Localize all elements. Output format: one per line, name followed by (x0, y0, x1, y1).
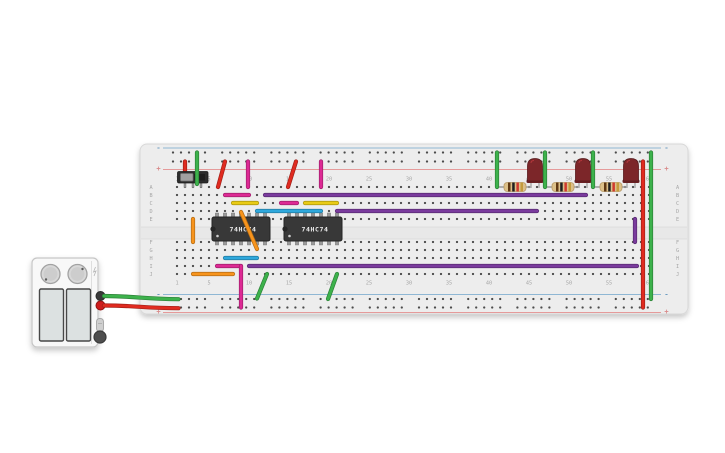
rail-hole[interactable] (335, 306, 337, 308)
breadboard-hole[interactable] (368, 186, 370, 188)
breadboard-hole[interactable] (376, 241, 378, 243)
rail-hole[interactable] (442, 298, 444, 300)
breadboard-hole[interactable] (576, 218, 578, 220)
breadboard-hole[interactable] (192, 210, 194, 212)
breadboard-hole[interactable] (448, 186, 450, 188)
breadboard-hole[interactable] (552, 210, 554, 212)
power-button[interactable] (94, 331, 106, 343)
breadboard-hole[interactable] (400, 186, 402, 188)
breadboard-hole[interactable] (192, 194, 194, 196)
rail-hole[interactable] (286, 298, 288, 300)
breadboard-hole[interactable] (280, 186, 282, 188)
breadboard-hole[interactable] (616, 194, 618, 196)
breadboard-hole[interactable] (272, 257, 274, 259)
breadboard-hole[interactable] (592, 202, 594, 204)
breadboard-hole[interactable] (192, 249, 194, 251)
rail-hole[interactable] (426, 160, 428, 162)
breadboard-hole[interactable] (496, 218, 498, 220)
rail-hole[interactable] (597, 151, 599, 153)
breadboard-hole[interactable] (328, 257, 330, 259)
breadboard-hole[interactable] (616, 273, 618, 275)
breadboard-hole[interactable] (568, 202, 570, 204)
breadboard-hole[interactable] (408, 273, 410, 275)
breadboard-hole[interactable] (624, 218, 626, 220)
breadboard-hole[interactable] (624, 194, 626, 196)
breadboard-hole[interactable] (560, 202, 562, 204)
breadboard-hole[interactable] (504, 241, 506, 243)
rail-hole[interactable] (516, 298, 518, 300)
rail-hole[interactable] (221, 306, 223, 308)
breadboard-hole[interactable] (352, 218, 354, 220)
rail-hole[interactable] (245, 151, 247, 153)
rail-hole[interactable] (499, 160, 501, 162)
breadboard-hole[interactable] (360, 241, 362, 243)
circuit-canvas[interactable]: --++--++11551010151520202525303035354040… (0, 0, 725, 453)
rail-hole[interactable] (647, 151, 649, 153)
breadboard-hole[interactable] (568, 257, 570, 259)
breadboard-hole[interactable] (376, 257, 378, 259)
breadboard-hole[interactable] (576, 241, 578, 243)
breadboard-hole[interactable] (536, 186, 538, 188)
rail-hole[interactable] (475, 160, 477, 162)
breadboard-hole[interactable] (520, 241, 522, 243)
rail-hole[interactable] (589, 298, 591, 300)
breadboard-hole[interactable] (368, 249, 370, 251)
rail-hole[interactable] (524, 306, 526, 308)
breadboard-hole[interactable] (464, 273, 466, 275)
rail-hole[interactable] (639, 160, 641, 162)
rail-hole[interactable] (442, 306, 444, 308)
power-supply[interactable] (32, 258, 106, 347)
breadboard-hole[interactable] (456, 202, 458, 204)
rail-hole[interactable] (450, 160, 452, 162)
rail-hole[interactable] (418, 298, 420, 300)
breadboard-hole[interactable] (200, 257, 202, 259)
rail-hole[interactable] (491, 160, 493, 162)
breadboard-hole[interactable] (608, 241, 610, 243)
breadboard-hole[interactable] (440, 249, 442, 251)
rail-hole[interactable] (377, 151, 379, 153)
breadboard-hole[interactable] (592, 241, 594, 243)
breadboard-hole[interactable] (200, 218, 202, 220)
breadboard-hole[interactable] (328, 186, 330, 188)
breadboard-hole[interactable] (416, 202, 418, 204)
breadboard-hole[interactable] (528, 241, 530, 243)
breadboard-hole[interactable] (584, 186, 586, 188)
breadboard-hole[interactable] (472, 186, 474, 188)
rail-hole[interactable] (319, 306, 321, 308)
rail-hole[interactable] (237, 151, 239, 153)
breadboard-hole[interactable] (272, 249, 274, 251)
rail-hole[interactable] (434, 298, 436, 300)
breadboard-hole[interactable] (280, 257, 282, 259)
breadboard-hole[interactable] (456, 249, 458, 251)
breadboard-hole[interactable] (184, 273, 186, 275)
breadboard-hole[interactable] (272, 202, 274, 204)
breadboard-hole[interactable] (480, 186, 482, 188)
breadboard-hole[interactable] (528, 257, 530, 259)
rail-hole[interactable] (253, 306, 255, 308)
breadboard-hole[interactable] (416, 257, 418, 259)
rail-hole[interactable] (270, 151, 272, 153)
breadboard-hole[interactable] (176, 202, 178, 204)
rail-hole[interactable] (327, 306, 329, 308)
rail-hole[interactable] (639, 151, 641, 153)
breadboard-hole[interactable] (576, 202, 578, 204)
breadboard-hole[interactable] (504, 273, 506, 275)
rail-hole[interactable] (351, 160, 353, 162)
breadboard-hole[interactable] (512, 218, 514, 220)
breadboard-hole[interactable] (240, 249, 242, 251)
breadboard-hole[interactable] (488, 186, 490, 188)
rail-hole[interactable] (319, 298, 321, 300)
rail-hole[interactable] (196, 298, 198, 300)
breadboard-hole[interactable] (632, 273, 634, 275)
breadboard-hole[interactable] (488, 218, 490, 220)
rail-hole[interactable] (286, 306, 288, 308)
breadboard-hole[interactable] (584, 273, 586, 275)
rail-hole[interactable] (369, 306, 371, 308)
rail-hole[interactable] (475, 298, 477, 300)
breadboard-hole[interactable] (416, 218, 418, 220)
breadboard-hole[interactable] (232, 186, 234, 188)
breadboard-hole[interactable] (424, 218, 426, 220)
breadboard-hole[interactable] (232, 210, 234, 212)
rail-hole[interactable] (351, 298, 353, 300)
breadboard-hole[interactable] (312, 257, 314, 259)
breadboard-hole[interactable] (520, 257, 522, 259)
breadboard-hole[interactable] (312, 249, 314, 251)
breadboard-hole[interactable] (512, 241, 514, 243)
rail-hole[interactable] (188, 306, 190, 308)
breadboard-hole[interactable] (488, 202, 490, 204)
breadboard-hole[interactable] (432, 202, 434, 204)
breadboard-hole[interactable] (296, 249, 298, 251)
breadboard-hole[interactable] (464, 249, 466, 251)
breadboard-hole[interactable] (416, 186, 418, 188)
breadboard-hole[interactable] (384, 249, 386, 251)
breadboard-hole[interactable] (592, 273, 594, 275)
breadboard-hole[interactable] (464, 241, 466, 243)
breadboard-hole[interactable] (464, 218, 466, 220)
breadboard-hole[interactable] (600, 202, 602, 204)
rail-hole[interactable] (623, 306, 625, 308)
breadboard-hole[interactable] (376, 218, 378, 220)
breadboard-hole[interactable] (624, 202, 626, 204)
rail-hole[interactable] (385, 306, 387, 308)
breadboard-hole[interactable] (176, 265, 178, 267)
rail-hole[interactable] (434, 306, 436, 308)
breadboard-hole[interactable] (464, 257, 466, 259)
breadboard-hole[interactable] (576, 249, 578, 251)
rail-hole[interactable] (467, 160, 469, 162)
breadboard-hole[interactable] (392, 186, 394, 188)
breadboard-hole[interactable] (264, 186, 266, 188)
breadboard-hole[interactable] (440, 186, 442, 188)
rail-hole[interactable] (245, 306, 247, 308)
breadboard-hole[interactable] (216, 249, 218, 251)
breadboard-hole[interactable] (200, 194, 202, 196)
breadboard-hole[interactable] (592, 194, 594, 196)
breadboard-hole[interactable] (344, 241, 346, 243)
rail-hole[interactable] (532, 298, 534, 300)
rail-hole[interactable] (581, 298, 583, 300)
rail-hole[interactable] (369, 160, 371, 162)
rail-hole[interactable] (335, 298, 337, 300)
breadboard-hole[interactable] (288, 249, 290, 251)
rail-hole[interactable] (442, 151, 444, 153)
breadboard-hole[interactable] (272, 186, 274, 188)
rail-hole[interactable] (253, 151, 255, 153)
breadboard-hole[interactable] (480, 257, 482, 259)
breadboard-hole[interactable] (600, 249, 602, 251)
rail-hole[interactable] (450, 151, 452, 153)
breadboard-hole[interactable] (592, 218, 594, 220)
breadboard-hole[interactable] (176, 273, 178, 275)
breadboard-hole[interactable] (192, 202, 194, 204)
breadboard-hole[interactable] (552, 241, 554, 243)
breadboard-hole[interactable] (344, 257, 346, 259)
rail-hole[interactable] (286, 160, 288, 162)
breadboard-hole[interactable] (352, 273, 354, 275)
rail-hole[interactable] (647, 306, 649, 308)
rail-hole[interactable] (491, 151, 493, 153)
breadboard-hole[interactable] (504, 218, 506, 220)
breadboard-hole[interactable] (632, 202, 634, 204)
breadboard-hole[interactable] (568, 249, 570, 251)
breadboard-hole[interactable] (392, 257, 394, 259)
rail-hole[interactable] (229, 298, 231, 300)
breadboard-hole[interactable] (176, 257, 178, 259)
breadboard-hole[interactable] (520, 273, 522, 275)
rail-hole[interactable] (499, 151, 501, 153)
rail-hole[interactable] (573, 160, 575, 162)
rail-hole[interactable] (426, 298, 428, 300)
breadboard-hole[interactable] (528, 273, 530, 275)
breadboard-hole[interactable] (176, 249, 178, 251)
breadboard-hole[interactable] (224, 249, 226, 251)
breadboard-hole[interactable] (568, 273, 570, 275)
breadboard-hole[interactable] (552, 257, 554, 259)
breadboard-hole[interactable] (184, 265, 186, 267)
breadboard-hole[interactable] (568, 210, 570, 212)
rail-hole[interactable] (516, 160, 518, 162)
breadboard-hole[interactable] (544, 218, 546, 220)
rail-hole[interactable] (377, 306, 379, 308)
breadboard-hole[interactable] (408, 241, 410, 243)
rail-hole[interactable] (639, 306, 641, 308)
breadboard-hole[interactable] (280, 218, 282, 220)
breadboard-hole[interactable] (280, 273, 282, 275)
rail-hole[interactable] (335, 160, 337, 162)
rail-hole[interactable] (204, 160, 206, 162)
breadboard-hole[interactable] (448, 249, 450, 251)
breadboard-hole[interactable] (320, 273, 322, 275)
breadboard-hole[interactable] (576, 257, 578, 259)
ic-74hc74-2[interactable]: 74HC74 (282, 213, 342, 245)
breadboard-hole[interactable] (408, 249, 410, 251)
breadboard-hole[interactable] (416, 241, 418, 243)
rail-hole[interactable] (343, 306, 345, 308)
breadboard-hole[interactable] (496, 249, 498, 251)
breadboard-hole[interactable] (608, 202, 610, 204)
breadboard-hole[interactable] (176, 218, 178, 220)
breadboard-hole[interactable] (296, 273, 298, 275)
rail-hole[interactable] (302, 306, 304, 308)
breadboard-hole[interactable] (472, 218, 474, 220)
rail-hole[interactable] (343, 151, 345, 153)
breadboard-hole[interactable] (344, 273, 346, 275)
rail-hole[interactable] (302, 160, 304, 162)
rail-hole[interactable] (475, 306, 477, 308)
breadboard-hole[interactable] (376, 273, 378, 275)
breadboard-hole[interactable] (560, 210, 562, 212)
rail-hole[interactable] (565, 160, 567, 162)
breadboard-hole[interactable] (456, 218, 458, 220)
switch-slider-knob[interactable] (181, 174, 194, 182)
breadboard-hole[interactable] (184, 241, 186, 243)
breadboard-hole[interactable] (352, 186, 354, 188)
breadboard-hole[interactable] (624, 257, 626, 259)
breadboard-hole[interactable] (504, 202, 506, 204)
rail-hole[interactable] (393, 298, 395, 300)
rail-hole[interactable] (581, 151, 583, 153)
rail-hole[interactable] (188, 298, 190, 300)
breadboard-hole[interactable] (208, 194, 210, 196)
breadboard-hole[interactable] (496, 202, 498, 204)
rail-hole[interactable] (516, 306, 518, 308)
breadboard-hole[interactable] (224, 210, 226, 212)
breadboard-hole[interactable] (632, 194, 634, 196)
breadboard-hole[interactable] (624, 249, 626, 251)
rail-hole[interactable] (401, 151, 403, 153)
breadboard-hole[interactable] (360, 186, 362, 188)
breadboard-hole[interactable] (632, 249, 634, 251)
rail-hole[interactable] (393, 160, 395, 162)
breadboard-hole[interactable] (344, 186, 346, 188)
rail-hole[interactable] (221, 298, 223, 300)
rail-hole[interactable] (573, 298, 575, 300)
breadboard-hole[interactable] (384, 273, 386, 275)
rail-hole[interactable] (385, 298, 387, 300)
breadboard-hole[interactable] (592, 210, 594, 212)
breadboard-hole[interactable] (192, 265, 194, 267)
breadboard-hole[interactable] (496, 273, 498, 275)
rail-hole[interactable] (418, 306, 420, 308)
breadboard-hole[interactable] (296, 257, 298, 259)
breadboard-hole[interactable] (552, 249, 554, 251)
breadboard-hole[interactable] (472, 202, 474, 204)
breadboard-hole[interactable] (512, 273, 514, 275)
breadboard-hole[interactable] (520, 249, 522, 251)
breadboard-hole[interactable] (216, 257, 218, 259)
rail-hole[interactable] (623, 298, 625, 300)
breadboard-hole[interactable] (392, 218, 394, 220)
rail-hole[interactable] (565, 298, 567, 300)
breadboard-hole[interactable] (408, 186, 410, 188)
rail-hole[interactable] (172, 151, 174, 153)
breadboard-hole[interactable] (280, 249, 282, 251)
breadboard-hole[interactable] (432, 249, 434, 251)
breadboard-hole[interactable] (304, 249, 306, 251)
breadboard-hole[interactable] (216, 194, 218, 196)
breadboard-hole[interactable] (184, 210, 186, 212)
breadboard-hole[interactable] (320, 257, 322, 259)
rail-hole[interactable] (434, 151, 436, 153)
rail-hole[interactable] (615, 298, 617, 300)
breadboard-hole[interactable] (424, 273, 426, 275)
breadboard-hole[interactable] (568, 218, 570, 220)
breadboard-hole[interactable] (592, 249, 594, 251)
breadboard-hole[interactable] (608, 249, 610, 251)
rail-hole[interactable] (483, 151, 485, 153)
breadboard-hole[interactable] (600, 218, 602, 220)
breadboard-hole[interactable] (608, 194, 610, 196)
breadboard-hole[interactable] (408, 218, 410, 220)
rail-hole[interactable] (401, 298, 403, 300)
rail-hole[interactable] (647, 160, 649, 162)
rail-hole[interactable] (418, 160, 420, 162)
breadboard-hole[interactable] (608, 210, 610, 212)
breadboard-hole[interactable] (360, 273, 362, 275)
breadboard-hole[interactable] (344, 202, 346, 204)
rail-hole[interactable] (229, 160, 231, 162)
breadboard-hole[interactable] (376, 186, 378, 188)
breadboard-hole[interactable] (544, 241, 546, 243)
breadboard-hole[interactable] (376, 202, 378, 204)
rail-hole[interactable] (548, 151, 550, 153)
breadboard-hole[interactable] (192, 257, 194, 259)
rail-hole[interactable] (615, 160, 617, 162)
rail-hole[interactable] (377, 298, 379, 300)
breadboard-hole[interactable] (336, 186, 338, 188)
rail-hole[interactable] (450, 306, 452, 308)
breadboard-hole[interactable] (416, 249, 418, 251)
breadboard-hole[interactable] (552, 273, 554, 275)
breadboard-hole[interactable] (352, 249, 354, 251)
breadboard-hole[interactable] (400, 218, 402, 220)
breadboard-hole[interactable] (264, 257, 266, 259)
breadboard-hole[interactable] (488, 257, 490, 259)
breadboard-hole[interactable] (288, 273, 290, 275)
breadboard-hole[interactable] (584, 210, 586, 212)
breadboard-hole[interactable] (336, 257, 338, 259)
rail-hole[interactable] (237, 160, 239, 162)
rail-hole[interactable] (623, 151, 625, 153)
breadboard-hole[interactable] (488, 273, 490, 275)
breadboard-hole[interactable] (400, 202, 402, 204)
breadboard-hole[interactable] (368, 202, 370, 204)
breadboard-hole[interactable] (536, 218, 538, 220)
rail-hole[interactable] (229, 306, 231, 308)
breadboard-hole[interactable] (536, 273, 538, 275)
breadboard-hole[interactable] (480, 218, 482, 220)
breadboard-hole[interactable] (480, 249, 482, 251)
breadboard-hole[interactable] (184, 249, 186, 251)
breadboard-hole[interactable] (296, 186, 298, 188)
rail-hole[interactable] (540, 151, 542, 153)
rail-hole[interactable] (524, 298, 526, 300)
breadboard-hole[interactable] (584, 241, 586, 243)
breadboard-hole[interactable] (536, 202, 538, 204)
breadboard-hole[interactable] (512, 249, 514, 251)
rail-hole[interactable] (491, 306, 493, 308)
breadboard-hole[interactable] (400, 241, 402, 243)
breadboard-hole[interactable] (480, 202, 482, 204)
breadboard-hole[interactable] (432, 186, 434, 188)
breadboard-hole[interactable] (544, 202, 546, 204)
breadboard-hole[interactable] (200, 241, 202, 243)
